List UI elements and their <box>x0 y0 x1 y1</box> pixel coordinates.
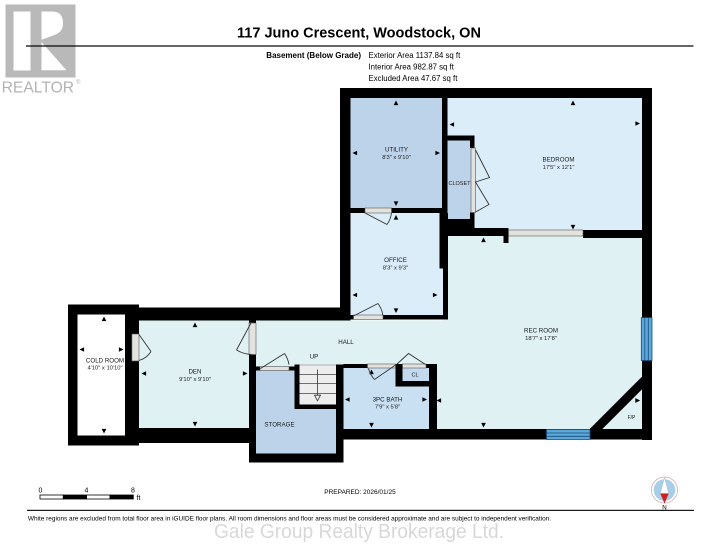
svg-text:Interior Area 982.87 sq ft: Interior Area 982.87 sq ft <box>369 63 455 72</box>
svg-text:3PC BATH: 3PC BATH <box>373 397 403 404</box>
svg-text:REC ROOM: REC ROOM <box>524 328 558 335</box>
svg-text:F/P: F/P <box>628 415 636 421</box>
svg-text:8: 8 <box>131 488 135 495</box>
svg-text:ft: ft <box>137 495 141 502</box>
svg-text:HALL: HALL <box>338 339 354 346</box>
svg-text:®: ® <box>76 79 81 86</box>
svg-text:REALTOR: REALTOR <box>2 79 75 96</box>
svg-text:DEN: DEN <box>188 369 201 376</box>
svg-text:CLOSET: CLOSET <box>448 181 471 187</box>
svg-text:Excluded Area 47.67 sq ft: Excluded Area 47.67 sq ft <box>369 74 459 83</box>
svg-text:CL: CL <box>411 373 418 379</box>
svg-text:7'9" x 5'8": 7'9" x 5'8" <box>375 405 400 411</box>
svg-text:8'3" x 9'10": 8'3" x 9'10" <box>382 155 411 161</box>
svg-text:117 Juno Crescent, Woodstock,: 117 Juno Crescent, Woodstock, ON <box>237 26 481 42</box>
svg-text:BEDROOM: BEDROOM <box>543 157 575 164</box>
svg-text:UTILITY: UTILITY <box>385 147 408 154</box>
svg-text:4: 4 <box>85 488 89 495</box>
svg-text:17'5" x 12'1": 17'5" x 12'1" <box>543 165 575 171</box>
svg-text:PREPARED: 2026/01/25: PREPARED: 2026/01/25 <box>324 489 396 496</box>
svg-text:OFFICE: OFFICE <box>384 257 407 264</box>
svg-text:4'10" x 10'10": 4'10" x 10'10" <box>87 366 122 372</box>
svg-text:White regions are excluded fro: White regions are excluded from total fl… <box>28 516 551 523</box>
svg-text:STORAGE: STORAGE <box>264 422 294 429</box>
svg-text:9'10" x 9'10": 9'10" x 9'10" <box>179 377 211 383</box>
svg-text:Exterior Area 1137.84 sq ft: Exterior Area 1137.84 sq ft <box>369 51 462 60</box>
svg-text:8'3" x 9'3": 8'3" x 9'3" <box>383 266 408 272</box>
svg-text:COLD ROOM: COLD ROOM <box>86 358 124 365</box>
svg-text:18'7" x 17'8": 18'7" x 17'8" <box>525 336 557 342</box>
svg-text:Gale Group Realty Brokerage Lt: Gale Group Realty Brokerage Ltd. <box>214 520 504 543</box>
svg-text:Basement (Below Grade): Basement (Below Grade) <box>266 51 361 60</box>
svg-text:UP: UP <box>310 354 319 361</box>
svg-text:0: 0 <box>39 488 43 495</box>
